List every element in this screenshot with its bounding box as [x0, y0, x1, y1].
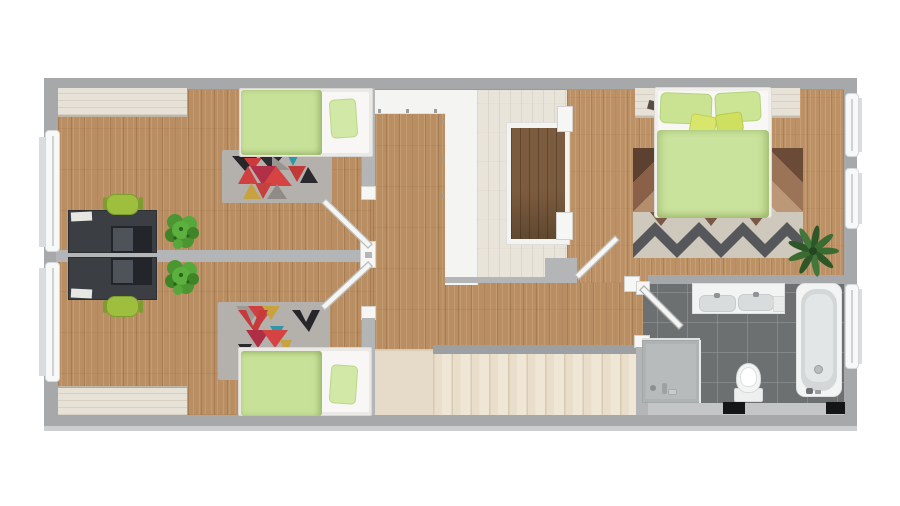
doors-plants-layer [0, 0, 900, 506]
floor-plan-render [0, 0, 900, 506]
plant-bottom-left [165, 260, 199, 295]
plant-master [787, 225, 839, 277]
door-leaves [325, 203, 679, 325]
plant-top-left [165, 214, 199, 249]
